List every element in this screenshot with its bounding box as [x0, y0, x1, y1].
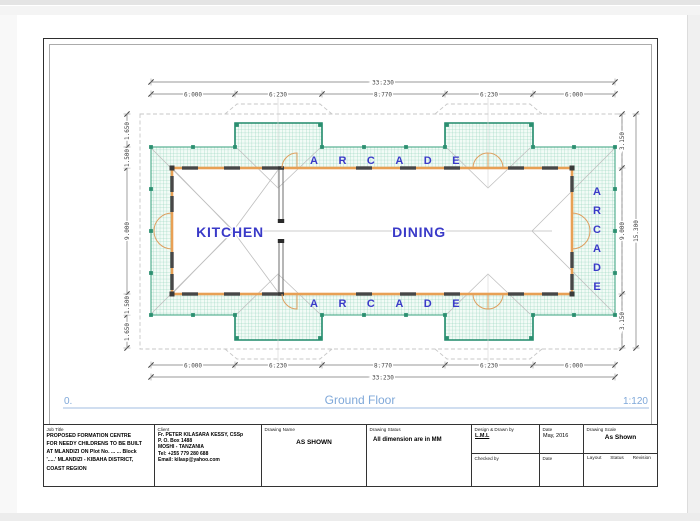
view-title: 0. Ground Floor 1:120 [63, 393, 649, 408]
svg-text:E: E [593, 281, 600, 293]
date-drawn-value: May, 2016 [540, 432, 583, 439]
svg-text:8.770: 8.770 [374, 92, 392, 99]
svg-text:6.230: 6.230 [480, 363, 498, 370]
client-text: Fr. PETER KILASARA KESSY, CSSp P. O. Box… [155, 432, 261, 464]
date-checked-label: Date [540, 454, 583, 461]
drawing-scale-label: Drawing Scale [584, 425, 657, 432]
title-block-dates: Date May, 2016 Date [539, 425, 583, 486]
revision-label: Revision [633, 456, 651, 486]
svg-text:A: A [593, 243, 601, 255]
revision-row: Layout Status Revision [584, 454, 657, 486]
dining-label: DINING [392, 224, 446, 240]
dimension-labels-left: 1.650 1.500 9.000 1.500 1.650 [124, 122, 131, 341]
svg-text:6.230: 6.230 [269, 92, 287, 99]
svg-text:6.000: 6.000 [184, 92, 202, 99]
svg-text:3.150: 3.150 [619, 132, 626, 150]
status-label: Status [610, 456, 624, 486]
title-block-job-title: Job Title PROPOSED FORMATION CENTRE FOR … [44, 425, 154, 486]
drawing-status-value: All dimension are in MM [367, 432, 471, 443]
checked-by-cell: Checked by [472, 454, 539, 486]
view-number: 0. [64, 396, 72, 407]
arcade-label-bottom: ARCADE [310, 298, 480, 310]
svg-text:3.150: 3.150 [619, 312, 626, 330]
svg-text:6.230: 6.230 [269, 363, 287, 370]
drawing-name-value: AS SHOWN [262, 439, 366, 446]
date-checked-cell: Date [540, 454, 583, 486]
layout-label: Layout [587, 456, 601, 486]
drawing-scale-value: As Shown [584, 434, 657, 441]
title-block-drawing-name: Drawing Name AS SHOWN [261, 425, 366, 486]
svg-text:6.000: 6.000 [565, 363, 583, 370]
checked-by-label: Checked by [472, 454, 539, 461]
title-block: Job Title PROPOSED FORMATION CENTRE FOR … [43, 424, 658, 487]
designed-by-value: L.M.L [472, 432, 539, 439]
title-block-client: Client Fr. PETER KILASARA KESSY, CSSp P.… [154, 425, 261, 486]
svg-text:6.000: 6.000 [565, 92, 583, 99]
svg-text:R: R [593, 205, 601, 217]
svg-text:9.000: 9.000 [619, 222, 626, 240]
svg-text:1.500: 1.500 [124, 149, 131, 167]
svg-text:6.000: 6.000 [184, 363, 202, 370]
svg-text:15.300: 15.300 [633, 220, 640, 242]
svg-text:33.230: 33.230 [372, 80, 394, 87]
drawing-scale-cell: Drawing Scale As Shown [584, 425, 657, 454]
svg-text:8.770: 8.770 [374, 363, 392, 370]
view-scale: 1:120 [623, 396, 648, 407]
svg-text:A: A [593, 186, 601, 198]
view-title-text: Ground Floor [325, 393, 396, 407]
svg-text:33.230: 33.230 [372, 375, 394, 382]
svg-text:D: D [593, 262, 601, 274]
kitchen-label: KITCHEN [196, 224, 264, 240]
svg-text:9.000: 9.000 [124, 222, 131, 240]
job-title-text: PROPOSED FORMATION CENTRE FOR NEEDY CHIL… [44, 432, 154, 474]
designed-by-cell: Design & Drawn by L.M.L [472, 425, 539, 454]
svg-text:C: C [593, 224, 601, 236]
arcade-label-top: ARCADE [310, 155, 480, 167]
date-drawn-cell: Date May, 2016 [540, 425, 583, 454]
title-block-drawing-status: Drawing Status All dimension are in MM [366, 425, 471, 486]
svg-text:1.500: 1.500 [124, 296, 131, 314]
svg-text:1.650: 1.650 [124, 122, 131, 140]
title-block-signatures: Design & Drawn by L.M.L Checked by [471, 425, 539, 486]
title-block-scale: Drawing Scale As Shown Layout Status Rev… [583, 425, 657, 486]
svg-text:6.230: 6.230 [480, 92, 498, 99]
svg-text:1.650: 1.650 [124, 323, 131, 341]
drawing-name-label: Drawing Name [262, 425, 366, 432]
